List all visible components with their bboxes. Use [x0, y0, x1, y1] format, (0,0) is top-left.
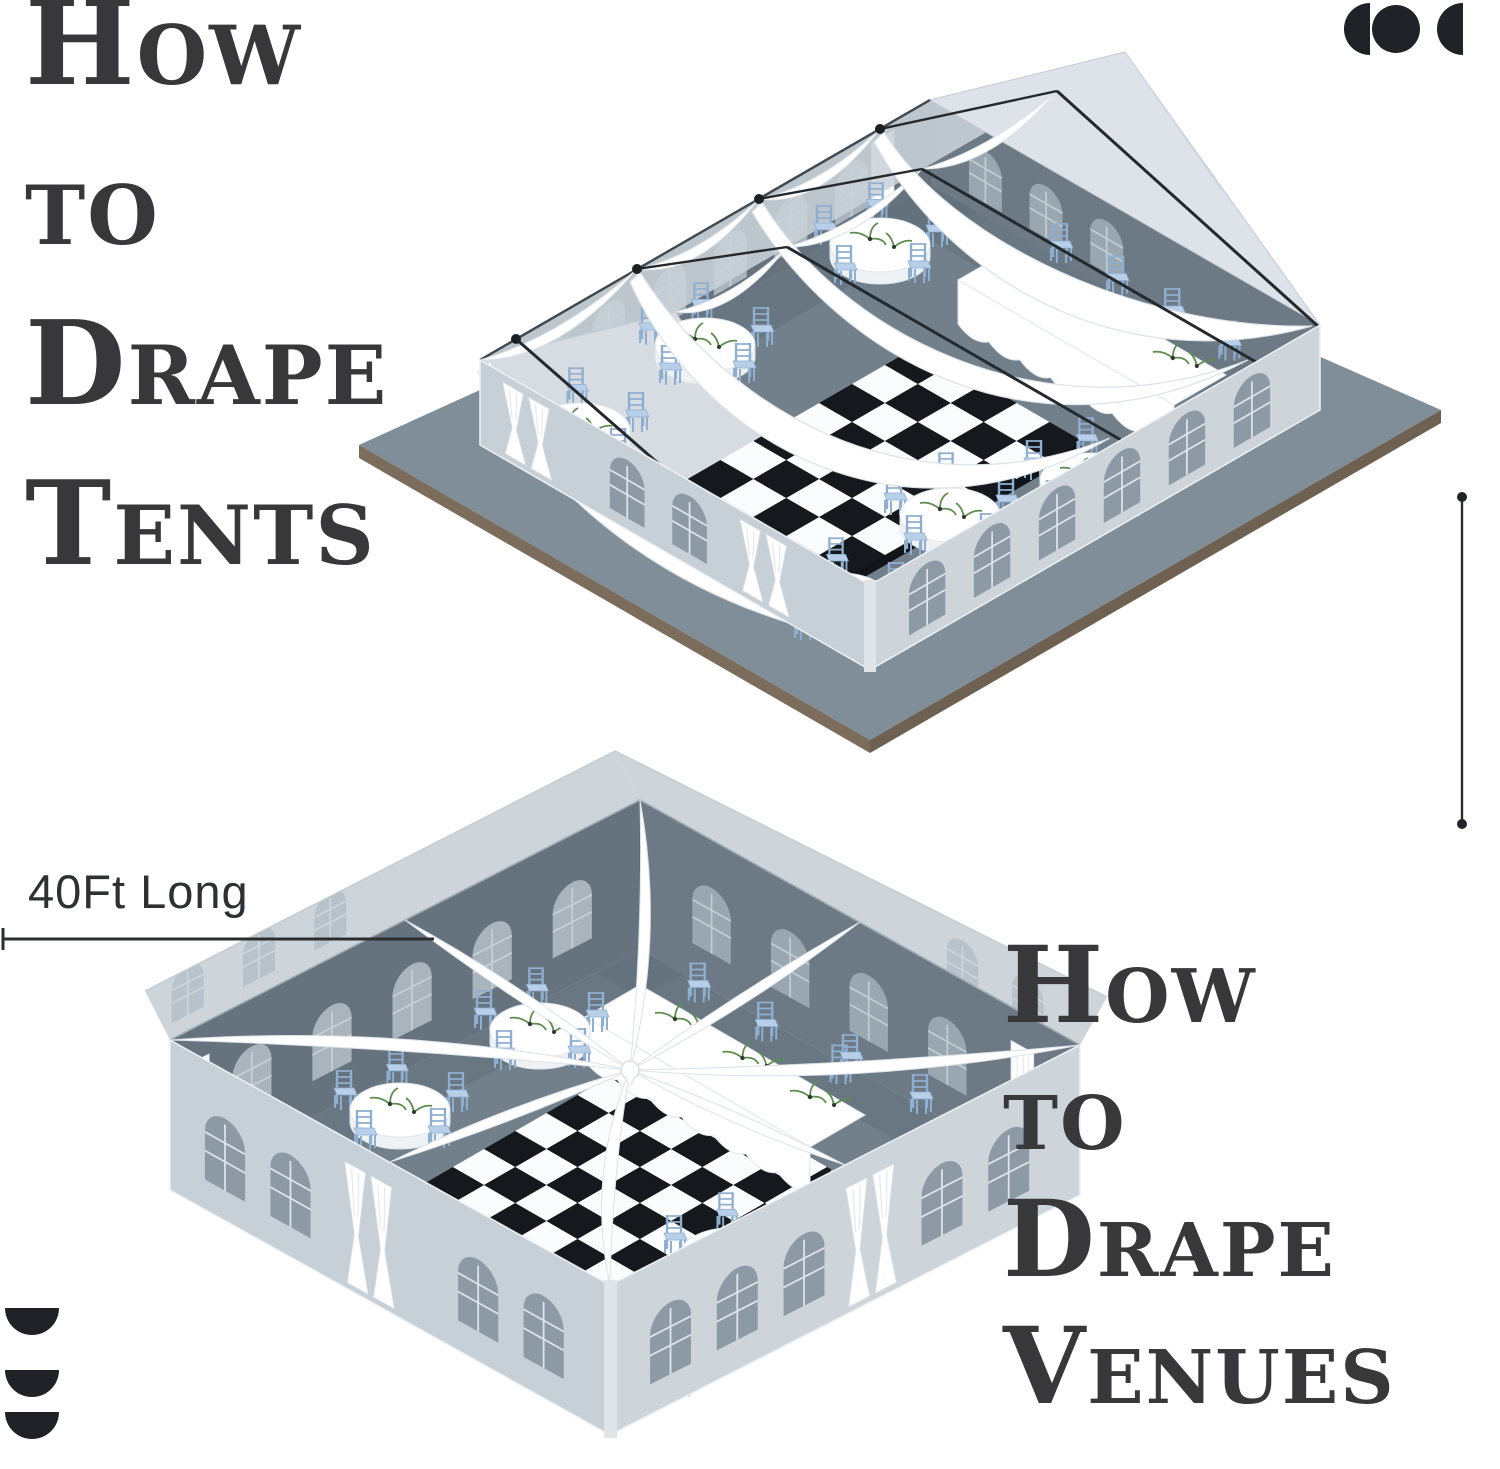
- venue-illustration: [145, 751, 1107, 1438]
- heading-line: to: [25, 146, 388, 306]
- heading-line: Drape: [1003, 1186, 1396, 1313]
- drape-knob: [511, 334, 521, 344]
- dimension-label: 40Ft Long: [28, 864, 249, 919]
- half-circle-icon: [1344, 3, 1370, 55]
- drape-knob: [632, 264, 642, 274]
- right-rule: [1457, 492, 1467, 829]
- heading-line: Drape: [25, 306, 388, 466]
- half-circle-down-icon: [5, 1308, 59, 1335]
- heading-how-to-drape-venues: How to Drape Venues: [1003, 932, 1396, 1440]
- heading-how-to-drape-tents: How to Drape Tents: [25, 0, 388, 626]
- circle-icon: [1372, 5, 1420, 53]
- drape-knob: [754, 194, 764, 204]
- heading-line: to: [1003, 1059, 1396, 1186]
- tent-illustration: [359, 52, 1441, 753]
- half-circle-down-icon: [5, 1412, 59, 1439]
- half-circle-icon: [1437, 3, 1463, 55]
- rule-dot-bottom: [1457, 819, 1467, 829]
- brand-mark-bottom-left-icon: [5, 1308, 59, 1439]
- heading-line: How: [1003, 932, 1396, 1059]
- heading-line: Tents: [25, 466, 388, 626]
- half-circle-down-icon: [5, 1370, 59, 1397]
- rule-dot-top: [1457, 492, 1467, 502]
- poster: How to Drape Tents How to Drape Venues 4…: [0, 0, 1500, 1469]
- drape-knob: [875, 124, 885, 134]
- heading-line: How: [25, 0, 388, 146]
- brand-mark-top-right-icon: [1344, 3, 1463, 55]
- heading-line: Venues: [1003, 1313, 1396, 1440]
